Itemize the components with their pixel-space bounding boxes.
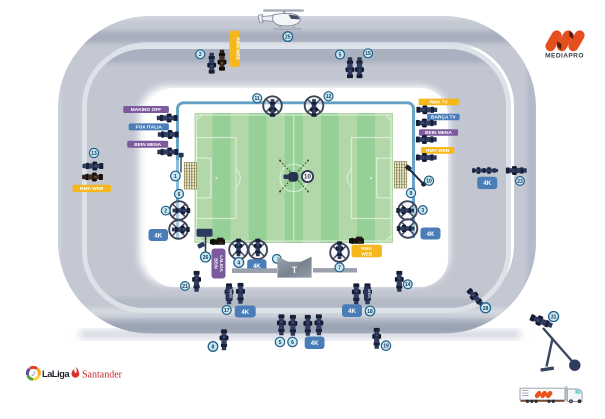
svg-text:Santander: Santander [82, 369, 123, 380]
svg-text:21: 21 [182, 284, 188, 290]
svg-text:15: 15 [365, 51, 371, 57]
svg-text:BEIN MENA: BEIN MENA [425, 130, 452, 136]
svg-text:LALIGA: LALIGA [219, 255, 224, 272]
svg-text:5: 5 [279, 340, 282, 346]
svg-text:19: 19 [383, 344, 389, 350]
svg-text:2: 2 [164, 209, 167, 215]
svg-text:T: T [292, 265, 298, 275]
svg-text:4K: 4K [311, 341, 319, 347]
svg-text:26: 26 [203, 255, 209, 261]
svg-text:BEIN MENA: BEIN MENA [134, 142, 161, 148]
svg-text:13: 13 [91, 151, 97, 157]
svg-text:2: 2 [199, 52, 202, 58]
svg-text:RMA WEB: RMA WEB [426, 148, 450, 154]
svg-text:1: 1 [174, 174, 177, 180]
svg-text:5: 5 [339, 52, 342, 58]
svg-text:FOX ITALIA: FOX ITALIA [136, 125, 163, 131]
svg-text:4: 4 [237, 261, 240, 267]
svg-text:BEIN: BEIN [213, 258, 218, 269]
svg-text:MEDIAPRO: MEDIAPRO [545, 53, 584, 60]
svg-text:WEB: WEB [229, 289, 233, 298]
svg-text:10: 10 [304, 174, 311, 181]
svg-text:4K: 4K [154, 233, 162, 239]
svg-text:RMA WEB: RMA WEB [236, 38, 241, 61]
svg-text:7: 7 [338, 265, 341, 271]
svg-text:LaLiga: LaLiga [42, 369, 70, 379]
svg-text:12: 12 [326, 94, 332, 100]
svg-text:WEB: WEB [361, 252, 372, 257]
svg-text:4K: 4K [427, 232, 435, 238]
svg-text:BARÇA TV: BARÇA TV [431, 115, 456, 121]
svg-text:9: 9 [410, 191, 413, 197]
svg-text:6: 6 [291, 340, 294, 346]
svg-text:14: 14 [405, 282, 411, 288]
svg-text:23: 23 [517, 179, 523, 185]
svg-text:RMA: RMA [361, 246, 372, 251]
svg-text:4K: 4K [241, 310, 249, 316]
svg-text:RMA WEB: RMA WEB [80, 186, 104, 192]
svg-text:8: 8 [212, 345, 215, 351]
svg-text:4K: 4K [483, 181, 491, 187]
svg-text:RMA TV: RMA TV [430, 100, 449, 106]
svg-text:6: 6 [178, 192, 181, 198]
svg-text:18: 18 [367, 309, 373, 315]
svg-text:3: 3 [421, 208, 424, 214]
svg-text:WEB: WEB [367, 289, 371, 298]
svg-text:17: 17 [224, 308, 230, 314]
svg-text:25: 25 [285, 35, 291, 41]
svg-text:4K: 4K [348, 309, 356, 315]
svg-text:10: 10 [426, 179, 432, 185]
svg-text:MAKING OFF: MAKING OFF [131, 107, 161, 113]
svg-text:11: 11 [255, 96, 261, 102]
svg-text:31: 31 [551, 315, 557, 321]
svg-text:28: 28 [483, 306, 489, 312]
